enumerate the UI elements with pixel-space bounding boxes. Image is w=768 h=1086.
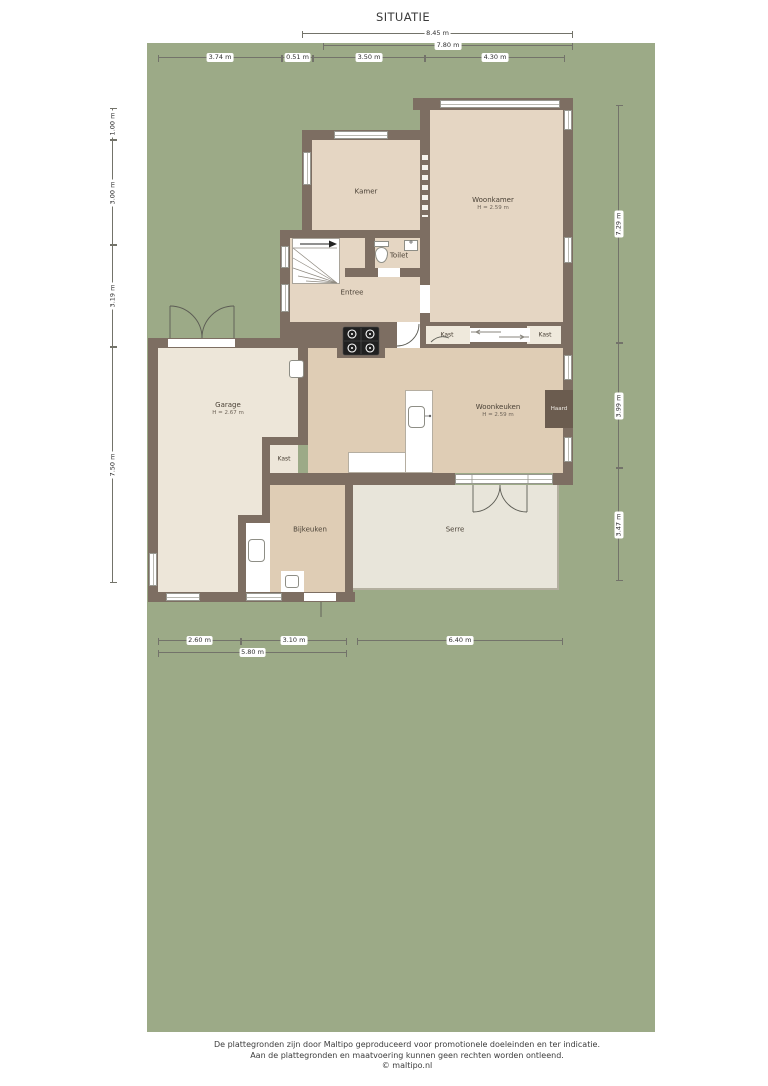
window xyxy=(334,131,388,139)
kast-label: Kast xyxy=(278,455,291,464)
haard-label: Haard xyxy=(551,406,568,412)
dimension-left-300: 3.00 m xyxy=(112,140,113,245)
entree-label: Entree xyxy=(341,289,364,298)
wall xyxy=(345,473,353,592)
kitchen-sink-icon xyxy=(408,406,425,428)
sink-tub-icon xyxy=(285,575,299,588)
dimension-top-overall: 8.45 m xyxy=(302,33,573,34)
dimension-label: 3.10 m xyxy=(281,636,308,645)
dimension-bottom-260: 2.60 m xyxy=(158,640,241,641)
woonkamer-height: H = 2.59 m xyxy=(472,205,514,212)
kamer-label: Kamer xyxy=(355,188,378,197)
dimension-left-750: 7.50 m xyxy=(112,347,113,583)
window xyxy=(303,152,311,185)
dimension-label: 3.50 m xyxy=(356,53,383,62)
woonkamer-label: Woonkamer H = 2.59 m xyxy=(472,196,514,212)
toilet-label: Toilet xyxy=(390,252,408,261)
window xyxy=(149,553,157,586)
woonkeuken-height: H = 2.59 m xyxy=(476,412,521,419)
dimension-label: 3.99 m xyxy=(615,392,624,419)
wall xyxy=(280,230,430,238)
wall xyxy=(238,515,270,523)
bijkeuken-label: Bijkeuken xyxy=(293,526,327,535)
footer-line-1: De plattegronden zijn door Maltipo gepro… xyxy=(214,1040,600,1051)
footer-disclaimer: De plattegronden zijn door Maltipo gepro… xyxy=(214,1040,600,1072)
dimension-top-350: 3.50 m xyxy=(313,57,425,58)
toilet-door-opening xyxy=(378,268,400,277)
kitchen-counter xyxy=(405,390,433,473)
woonkeuken-floor xyxy=(308,348,563,473)
garage-door-opening xyxy=(168,339,235,347)
kast-label: Kast xyxy=(441,331,454,340)
garage-floor-upper xyxy=(158,348,298,437)
serre-floor xyxy=(351,485,559,590)
dimension-top-780: 7.80 m xyxy=(323,45,573,46)
sliding-door-opening xyxy=(470,328,530,342)
kamer-floor xyxy=(312,140,420,230)
serre-label: Serre xyxy=(446,526,465,535)
dimension-top-430: 4.30 m xyxy=(425,57,565,58)
footer-line-2: Aan de plattegronden en maatvoering kunn… xyxy=(214,1051,600,1062)
dimension-label: 7.29 m xyxy=(615,211,624,238)
kitchen-counter xyxy=(348,452,406,473)
entree-woonkamer-opening xyxy=(420,285,430,313)
garage-height: H = 2.67 m xyxy=(212,410,244,417)
woonkeuken-label: Woonkeuken H = 2.59 m xyxy=(476,403,521,419)
dimension-label: 7.80 m xyxy=(435,41,462,50)
stove-wall-block xyxy=(337,322,385,358)
window xyxy=(246,593,282,601)
entree-woonkeuken-opening xyxy=(397,322,420,348)
dimension-label: 3.00 m xyxy=(109,179,118,206)
wall xyxy=(238,523,246,602)
wall xyxy=(262,437,270,473)
dimension-label: 6.40 m xyxy=(447,636,474,645)
window xyxy=(564,110,572,130)
dimension-label: 8.45 m xyxy=(424,29,451,38)
window xyxy=(564,237,572,263)
dimension-left-100: 1.00 m xyxy=(112,108,113,140)
window xyxy=(440,100,560,108)
dimension-label: 4.30 m xyxy=(482,53,509,62)
fireplace-block: Haard xyxy=(545,390,573,428)
window xyxy=(281,246,289,268)
dimension-label: 3.74 m xyxy=(207,53,234,62)
toilet-sink-icon xyxy=(404,240,418,251)
back-door-opening xyxy=(304,593,336,601)
dimension-label: 1.00 m xyxy=(109,111,118,138)
dimension-right-399: 3.99 m xyxy=(618,343,619,468)
garage-sink-icon xyxy=(289,360,304,378)
dimension-label: 0.51 m xyxy=(284,53,311,62)
open-divider-dashes xyxy=(422,155,428,217)
dimension-label: 3.47 m xyxy=(615,511,624,538)
kast-label: Kast xyxy=(539,331,552,340)
dimension-bottom-640: 6.40 m xyxy=(357,640,563,641)
serre-window-band xyxy=(455,474,553,484)
dimension-label: 2.60 m xyxy=(186,636,213,645)
page-title: SITUATIE xyxy=(376,10,430,24)
garage-label: Garage H = 2.67 m xyxy=(212,401,244,417)
stairs xyxy=(292,238,340,284)
dimension-right-347: 3.47 m xyxy=(618,468,619,581)
dimension-bottom-580: 5.80 m xyxy=(158,652,347,653)
footer-line-3: © maltipo.nl xyxy=(214,1061,600,1072)
floorplan-page: SITUATIE xyxy=(0,0,768,1086)
dimension-label: 3.19 m xyxy=(109,283,118,310)
wall xyxy=(553,473,573,485)
dimension-top-374: 3.74 m xyxy=(158,57,282,58)
window xyxy=(281,284,289,312)
dimension-label: 7.50 m xyxy=(109,452,118,479)
dimension-label: 5.80 m xyxy=(239,648,266,657)
dimension-bottom-310: 3.10 m xyxy=(241,640,347,641)
wall xyxy=(270,473,455,485)
window xyxy=(564,437,572,462)
woonkamer-floor xyxy=(423,108,563,322)
dimension-top-051: 0.51 m xyxy=(282,57,313,58)
window xyxy=(166,593,200,601)
dimension-left-319: 3.19 m xyxy=(112,245,113,347)
window xyxy=(564,355,572,380)
dimension-right-729: 7.29 m xyxy=(618,105,619,343)
washbasin-icon xyxy=(248,539,265,562)
